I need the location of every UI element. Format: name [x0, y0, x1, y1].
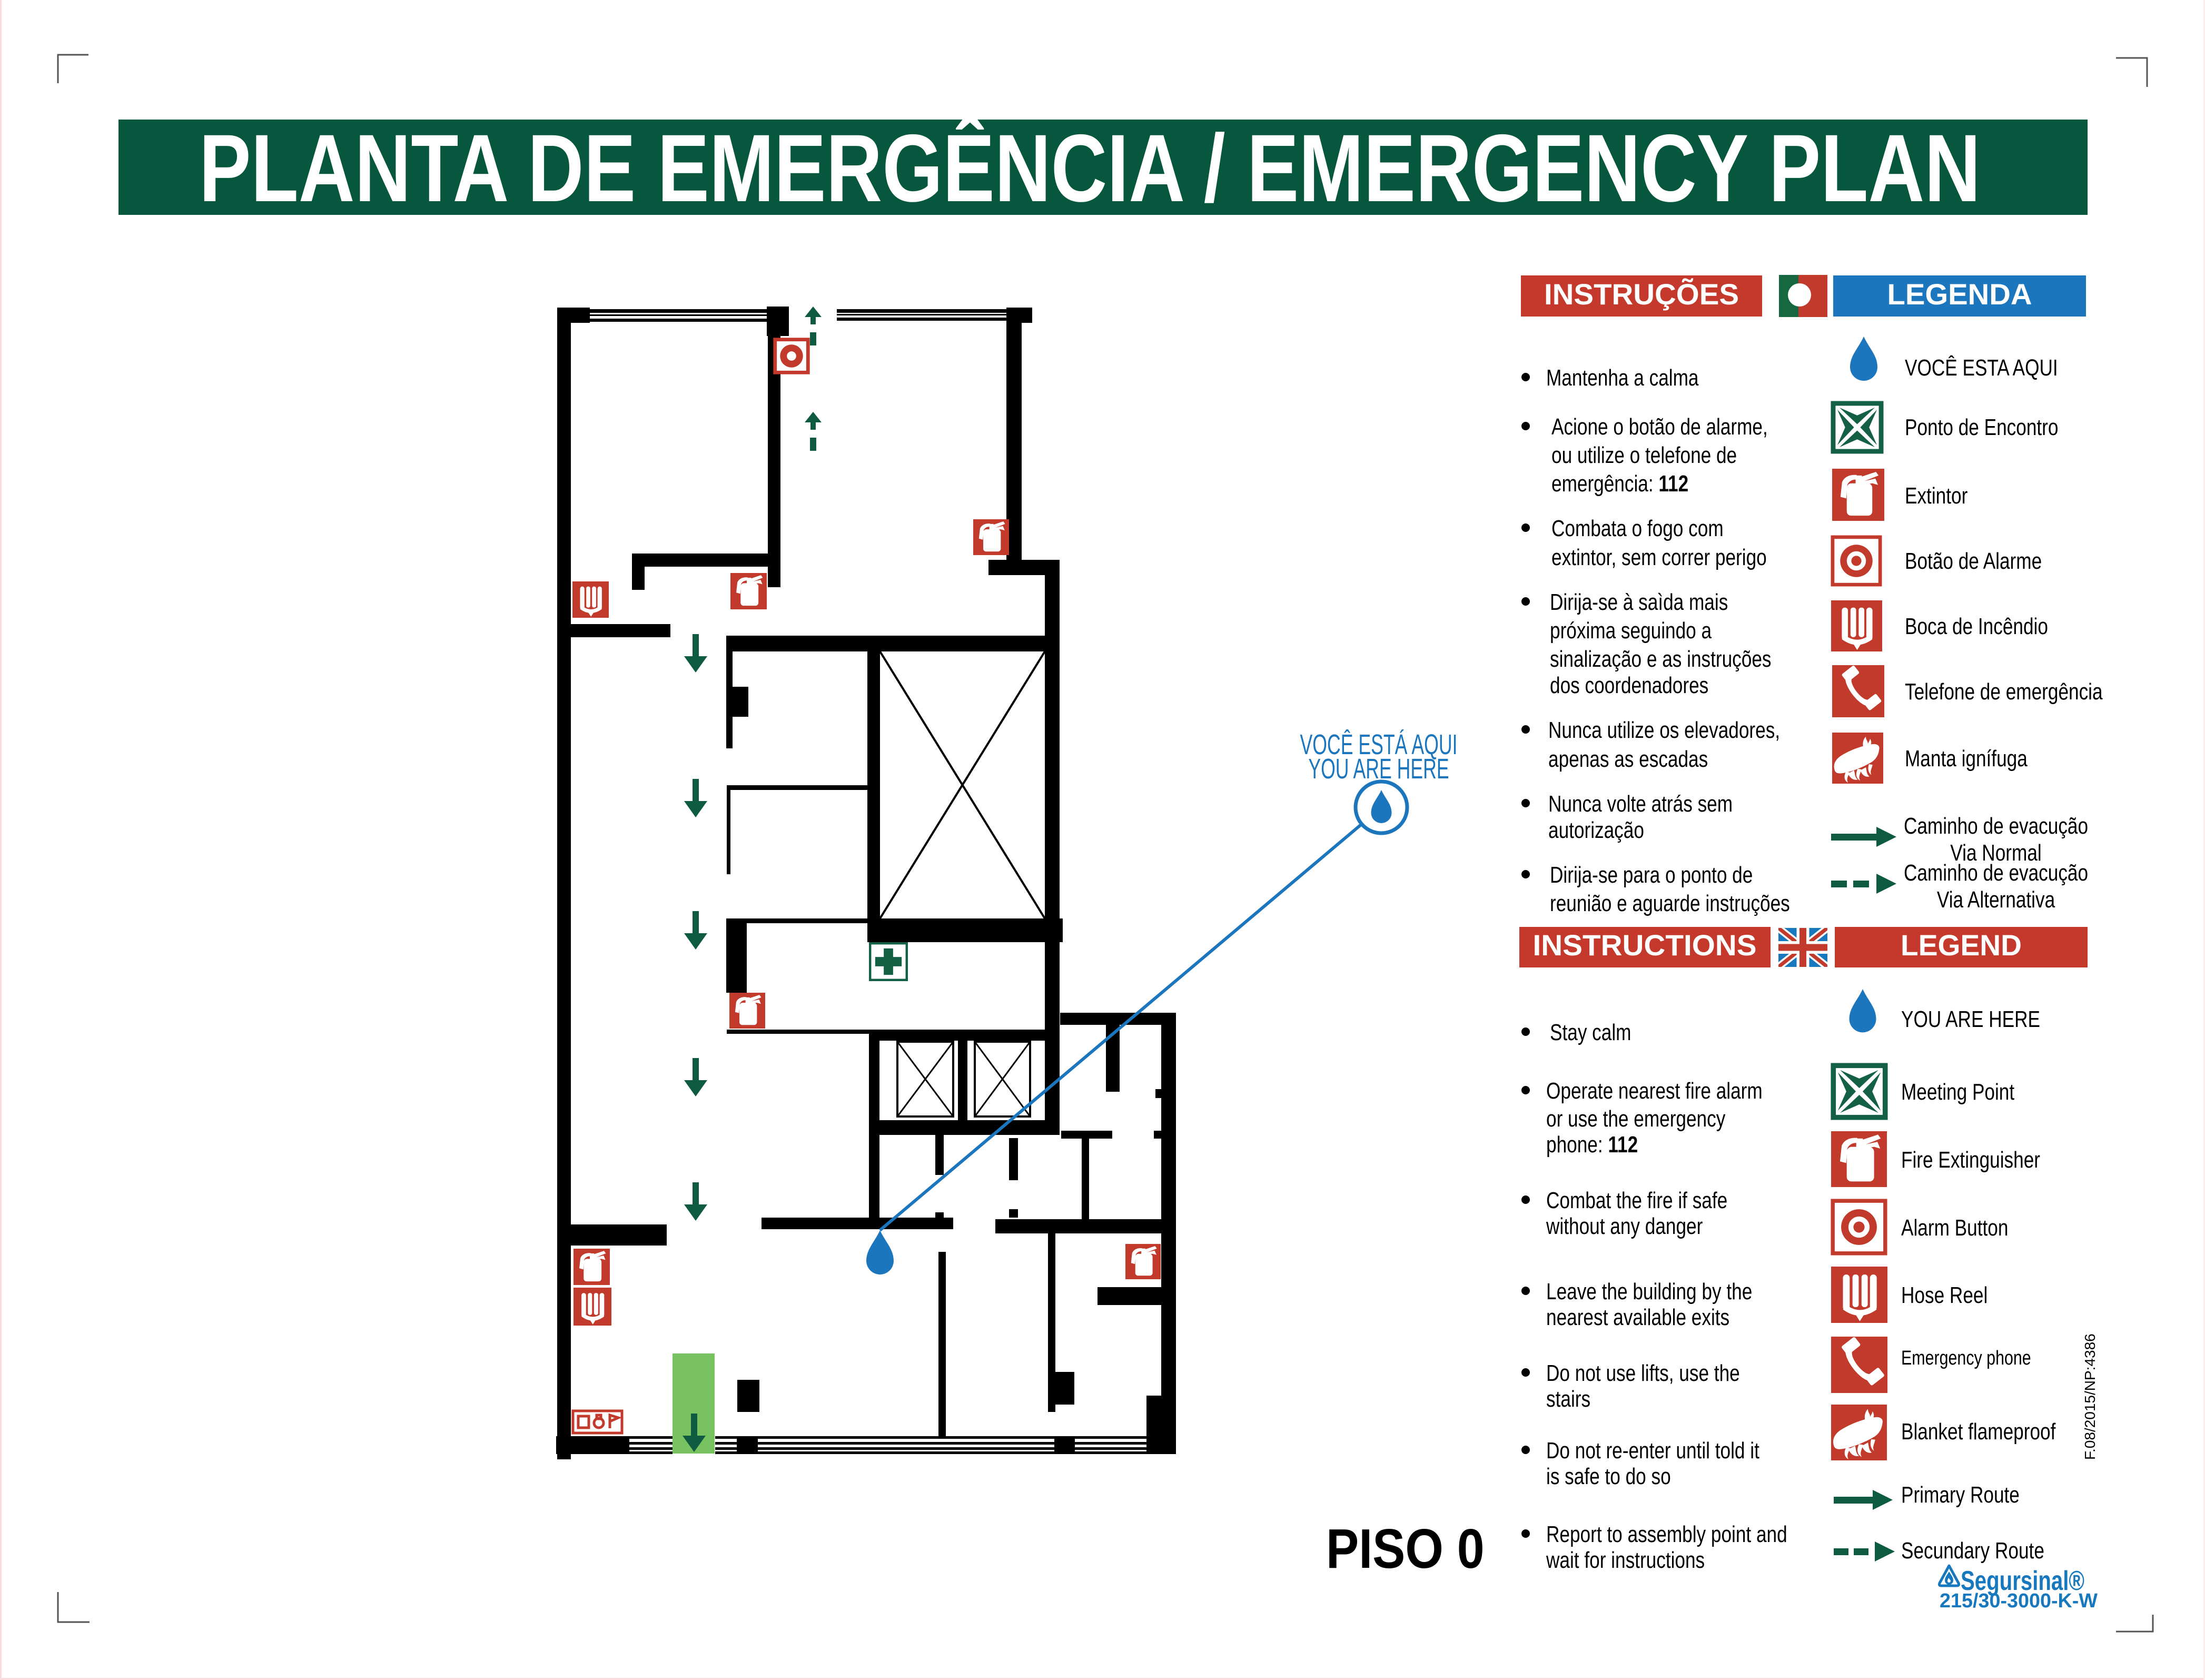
svg-text:INSTRUÇÕES: INSTRUÇÕES [1544, 278, 1739, 311]
svg-text:PLANTA DE EMERGÊNCIA / EMERGEN: PLANTA DE EMERGÊNCIA / EMERGENCY PLAN [199, 114, 1981, 222]
svg-text:Blanket flameproof: Blanket flameproof [1901, 1419, 2056, 1445]
svg-text:Meeting Point: Meeting Point [1901, 1079, 2014, 1105]
svg-text:Do not re-enter until told it: Do not re-enter until told it [1546, 1438, 1759, 1464]
svg-text:autorização: autorização [1548, 817, 1644, 843]
svg-text:Nunca utilize os elevadores,: Nunca utilize os elevadores, [1548, 717, 1780, 743]
svg-text:Report to assembly point and: Report to assembly point and [1546, 1521, 1787, 1547]
svg-text:Mantenha a calma: Mantenha a calma [1546, 365, 1699, 391]
svg-text:LEGEND: LEGEND [1901, 928, 2022, 962]
svg-text:próxima seguindo a: próxima seguindo a [1550, 618, 1712, 644]
svg-text:dos coordenadores: dos coordenadores [1550, 673, 1708, 698]
svg-text:215/30-3000-K-W: 215/30-3000-K-W [1940, 1590, 2098, 1612]
svg-text:PISO 0: PISO 0 [1326, 1518, 1485, 1580]
svg-text:is safe to do so: is safe to do so [1546, 1464, 1671, 1489]
svg-text:Nunca volte atrás sem: Nunca volte atrás sem [1548, 791, 1733, 817]
svg-text:Hose Reel: Hose Reel [1901, 1282, 1988, 1308]
svg-text:Botão de Alarme: Botão de Alarme [1905, 548, 2042, 574]
svg-text:INSTRUCTIONS: INSTRUCTIONS [1533, 928, 1757, 962]
svg-text:Stay calm: Stay calm [1550, 1020, 1631, 1045]
svg-text:stairs: stairs [1546, 1386, 1590, 1412]
svg-text:phone: 112: phone: 112 [1546, 1132, 1638, 1158]
svg-text:Ponto de Encontro: Ponto de Encontro [1905, 414, 2058, 440]
svg-text:Fire Extinguisher: Fire Extinguisher [1901, 1147, 2040, 1173]
svg-text:YOU ARE HERE: YOU ARE HERE [1308, 753, 1449, 785]
svg-text:LEGENDA: LEGENDA [1887, 278, 2032, 311]
svg-text:reunião e aguarde instruções: reunião e aguarde instruções [1550, 891, 1790, 916]
svg-text:Operate nearest fire alarm: Operate nearest fire alarm [1546, 1078, 1763, 1104]
svg-text:Caminho de evacução: Caminho de evacução [1904, 813, 2088, 839]
svg-text:Do not use lifts, use the: Do not use lifts, use the [1546, 1360, 1740, 1386]
svg-text:wait for instructions: wait for instructions [1546, 1547, 1705, 1573]
svg-text:Combata o fogo com: Combata o fogo com [1551, 516, 1724, 541]
svg-text:Emergency phone: Emergency phone [1901, 1347, 2031, 1369]
svg-text:nearest available exits: nearest available exits [1546, 1305, 1729, 1330]
svg-text:Primary Route: Primary Route [1901, 1482, 2020, 1508]
svg-text:Via Alternativa: Via Alternativa [1937, 887, 2055, 913]
svg-text:Boca de Incêndio: Boca de Incêndio [1905, 614, 2048, 639]
svg-text:Combat the fire if safe: Combat the fire if safe [1546, 1188, 1727, 1213]
svg-text:Extintor: Extintor [1905, 483, 1967, 509]
svg-text:Leave the building by the: Leave the building by the [1546, 1279, 1752, 1305]
svg-text:or use the emergency: or use the emergency [1546, 1106, 1725, 1132]
svg-text:VOCÊ ESTA AQUI: VOCÊ ESTA AQUI [1905, 354, 2058, 381]
svg-text:F.08/2015/NP:4386: F.08/2015/NP:4386 [2082, 1333, 2098, 1460]
svg-text:extintor, sem correr perigo: extintor, sem correr perigo [1551, 545, 1767, 570]
svg-text:ou utilize o telefone de: ou utilize o telefone de [1551, 442, 1737, 468]
svg-text:apenas as escadas: apenas as escadas [1548, 746, 1708, 772]
svg-text:Alarm Button: Alarm Button [1901, 1215, 2008, 1241]
svg-text:Manta ignífuga: Manta ignífuga [1905, 746, 2028, 772]
svg-text:Acione o botão de alarme,: Acione o botão de alarme, [1551, 414, 1768, 440]
svg-text:without any danger: without any danger [1546, 1213, 1703, 1239]
svg-text:Dirija-se para o ponto de: Dirija-se para o ponto de [1550, 862, 1753, 888]
svg-text:Secundary Route: Secundary Route [1901, 1538, 2044, 1564]
svg-text:emergência: 112: emergência: 112 [1551, 471, 1688, 497]
svg-text:Telefone de emergência: Telefone de emergência [1905, 679, 2103, 705]
svg-text:Dirija-se à saìda mais: Dirija-se à saìda mais [1550, 589, 1728, 615]
svg-text:sinalização e as instruções: sinalização e as instruções [1550, 646, 1772, 672]
svg-text:Caminho de evacução: Caminho de evacução [1904, 860, 2088, 886]
svg-text:YOU ARE HERE: YOU ARE HERE [1901, 1006, 2040, 1032]
